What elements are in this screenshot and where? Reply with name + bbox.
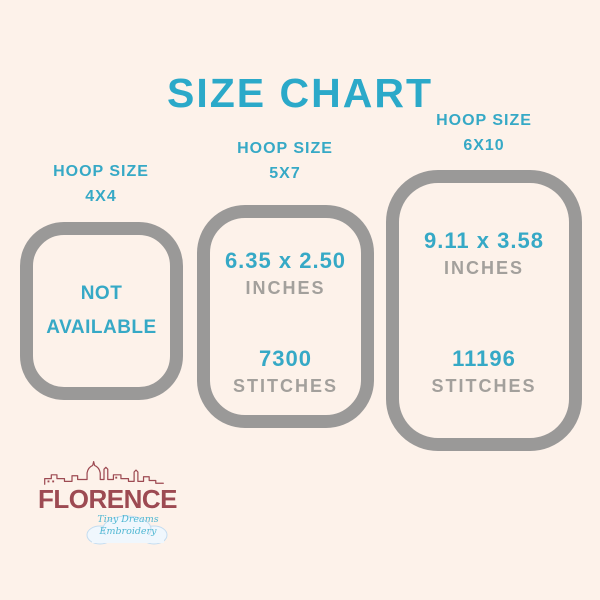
hoop-6x10-stitch-label: STITCHES — [399, 376, 569, 397]
hoop-4x4-label-line1: HOOP SIZE — [53, 163, 149, 180]
hoop-6x10-size-unit: INCHES — [399, 258, 569, 279]
not-available-line1: NOT — [81, 283, 123, 304]
hoop-4x4-outline: NOT AVAILABLE — [20, 222, 183, 400]
hoop-4x4-not-available: NOT AVAILABLE — [33, 277, 170, 345]
logo-cloud-area: Tiny Dreams Embroidery — [82, 511, 174, 545]
hoop-6x10-outline: 9.11 x 3.58 INCHES 11196 STITCHES — [386, 170, 582, 451]
hoop-6x10-size-value: 9.11 x 3.58 — [399, 228, 569, 254]
hoop-4x4-label-line2: 4X4 — [85, 188, 116, 205]
logo-wordmark: FLORENCE — [38, 486, 170, 512]
hoop-6x10-label: HOOP SIZE 6X10 — [436, 109, 532, 159]
logo-tagline-line1: Tiny Dreams — [82, 514, 174, 526]
hoop-5x7-outline: 6.35 x 2.50 INCHES 7300 STITCHES — [197, 205, 374, 428]
florence-logo: FLORENCE Tiny Dreams Embroidery — [38, 456, 170, 545]
hoop-5x7-label-line1: HOOP SIZE — [237, 140, 333, 157]
hoop-5x7-stitches: 7300 STITCHES — [210, 346, 361, 397]
hoop-5x7-size-value: 6.35 x 2.50 — [210, 248, 361, 274]
hoop-5x7-label: HOOP SIZE 5X7 — [237, 137, 333, 187]
hoop-6x10-stitches: 11196 STITCHES — [399, 346, 569, 397]
hoop-5x7-size: 6.35 x 2.50 INCHES — [210, 248, 361, 299]
hoop-4x4-label: HOOP SIZE 4X4 — [53, 160, 149, 210]
hoop-6x10-label-line1: HOOP SIZE — [436, 112, 532, 129]
hoop-5x7-label-line2: 5X7 — [269, 165, 300, 182]
hoop-6x10-size: 9.11 x 3.58 INCHES — [399, 228, 569, 279]
size-chart-infographic: SIZE CHART HOOP SIZE 4X4 NOT AVAILABLE H… — [0, 0, 600, 600]
not-available-line2: AVAILABLE — [46, 317, 156, 338]
logo-tagline: Tiny Dreams Embroidery — [82, 511, 174, 539]
hoop-5x7-stitch-count: 7300 — [210, 346, 361, 372]
hoop-5x7-size-unit: INCHES — [210, 278, 361, 299]
hoop-6x10-label-line2: 6X10 — [463, 137, 504, 154]
hoop-6x10-stitch-count: 11196 — [399, 346, 569, 372]
hoop-5x7-stitch-label: STITCHES — [210, 376, 361, 397]
logo-tagline-line2: Embroidery — [82, 526, 174, 538]
